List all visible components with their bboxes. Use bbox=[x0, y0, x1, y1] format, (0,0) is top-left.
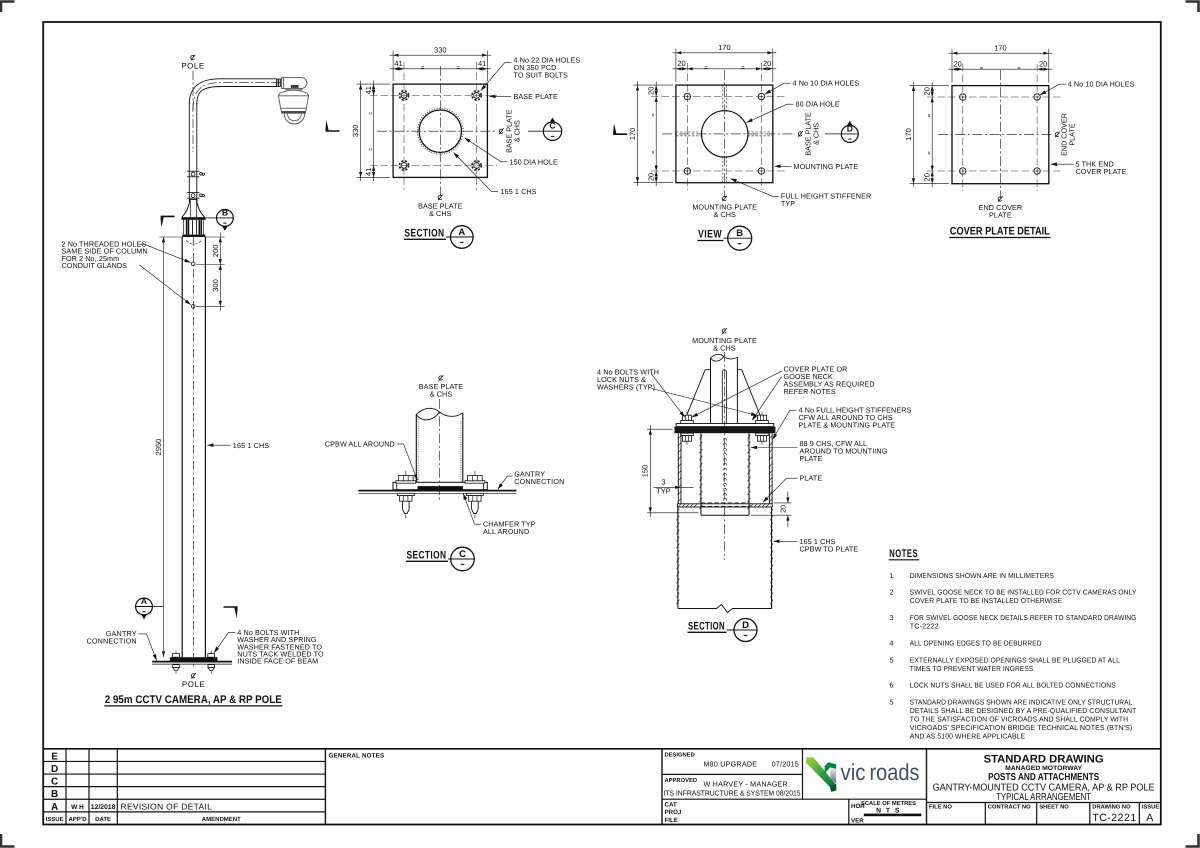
svg-text:PLATE: PLATE bbox=[1068, 123, 1077, 145]
svg-text:REVISION OF DETAIL: REVISION OF DETAIL bbox=[121, 801, 213, 811]
svg-text:CAT: CAT bbox=[665, 801, 677, 808]
svg-text:=: = bbox=[368, 147, 374, 151]
svg-text:FILE: FILE bbox=[665, 817, 678, 824]
svg-text:PLATE: PLATE bbox=[989, 211, 1012, 220]
svg-text:APP'D: APP'D bbox=[68, 816, 87, 823]
svg-text:SHEET NO: SHEET NO bbox=[1039, 804, 1069, 811]
svg-text:TC-2221: TC-2221 bbox=[1092, 812, 1136, 824]
svg-text:PLATE & MOUNTING PLATE: PLATE & MOUNTING PLATE bbox=[799, 421, 896, 430]
svg-text:=: = bbox=[980, 66, 984, 72]
svg-text:TIMES TO PREVENT WATER INGRESS: TIMES TO PREVENT WATER INGRESS bbox=[910, 665, 1034, 673]
svg-text:VICROADS' SPECIFICATION BRIDGE: VICROADS' SPECIFICATION BRIDGE TECHNICAL… bbox=[910, 724, 1133, 732]
svg-text:B: B bbox=[51, 789, 58, 800]
svg-text:EXTERNALLY EXPOSED OPENINGS SH: EXTERNALLY EXPOSED OPENINGS SHALL BE PLU… bbox=[910, 656, 1120, 664]
svg-text:5: 5 bbox=[890, 699, 894, 707]
svg-text:CONTRACT NO: CONTRACT NO bbox=[988, 804, 1031, 811]
svg-text:3: 3 bbox=[890, 614, 894, 622]
svg-text:170: 170 bbox=[628, 128, 637, 141]
svg-text:20: 20 bbox=[763, 59, 771, 68]
svg-text:& CHS: & CHS bbox=[430, 390, 453, 399]
svg-text:150: 150 bbox=[641, 465, 650, 478]
svg-text:PROJ: PROJ bbox=[665, 809, 682, 816]
svg-text:VIEW: VIEW bbox=[698, 229, 722, 241]
svg-text:FOR SWIVEL GOOSE NECK DETAILS: FOR SWIVEL GOOSE NECK DETAILS REFER TO S… bbox=[910, 614, 1137, 622]
svg-text:ALL OPENING EDGES TO BE DEBURR: ALL OPENING EDGES TO BE DEBURRED bbox=[910, 639, 1042, 647]
svg-text:DATE: DATE bbox=[95, 816, 111, 823]
svg-text:2950: 2950 bbox=[154, 439, 163, 456]
svg-text:170: 170 bbox=[994, 43, 1007, 52]
svg-text:4: 4 bbox=[890, 639, 894, 647]
svg-text:& CHS: & CHS bbox=[812, 123, 821, 145]
svg-text:170: 170 bbox=[904, 128, 913, 141]
svg-text:ISSUE: ISSUE bbox=[46, 816, 64, 823]
svg-text:POLE: POLE bbox=[181, 62, 204, 71]
svg-text:3: 3 bbox=[661, 478, 665, 487]
svg-text:DETAILS SHALL BE DESIGNED BY A: DETAILS SHALL BE DESIGNED BY A PRE-QUALI… bbox=[910, 707, 1137, 715]
svg-text:4 No 10 DIA HOLES: 4 No 10 DIA HOLES bbox=[793, 79, 860, 88]
svg-text:20: 20 bbox=[1039, 59, 1047, 68]
svg-text:07/2015: 07/2015 bbox=[772, 760, 799, 769]
svg-text:FILE NO: FILE NO bbox=[929, 804, 952, 811]
svg-text:MANAGED MOTORWAY: MANAGED MOTORWAY bbox=[1005, 765, 1083, 772]
svg-text:APPROVED: APPROVED bbox=[665, 777, 698, 784]
svg-text:AND AS 5100 WHERE APPLICABLE: AND AS 5100 WHERE APPLICABLE bbox=[910, 733, 1026, 741]
svg-text:C: C bbox=[459, 549, 466, 560]
svg-text:M80 UPGRADE: M80 UPGRADE bbox=[704, 760, 758, 769]
svg-text:REFER NOTES: REFER NOTES bbox=[784, 387, 836, 396]
svg-text:POSTS AND ATTACHMENTS: POSTS AND ATTACHMENTS bbox=[988, 772, 1099, 783]
svg-text:2 95m CCTV CAMERA, AP & RP POL: 2 95m CCTV CAMERA, AP & RP POLE bbox=[105, 694, 282, 706]
svg-text:D: D bbox=[742, 620, 749, 631]
svg-text:330: 330 bbox=[434, 45, 447, 54]
svg-text:=: = bbox=[741, 66, 745, 72]
svg-text:& CHS: & CHS bbox=[513, 120, 522, 142]
svg-text:=: = bbox=[704, 66, 708, 72]
svg-text:E: E bbox=[51, 751, 58, 762]
svg-text:41: 41 bbox=[364, 86, 373, 94]
svg-text:SECTION: SECTION bbox=[407, 550, 447, 562]
svg-text:W HARVEY - MANAGER: W HARVEY - MANAGER bbox=[704, 780, 788, 789]
svg-text:41: 41 bbox=[478, 59, 486, 68]
svg-text:5: 5 bbox=[890, 656, 894, 664]
svg-text:200: 200 bbox=[211, 245, 220, 258]
svg-text:INSIDE FACE OF BEAM: INSIDE FACE OF BEAM bbox=[237, 657, 318, 666]
svg-text:N T S: N T S bbox=[876, 807, 901, 814]
svg-text:TYP: TYP bbox=[781, 199, 795, 208]
svg-text:=: = bbox=[421, 66, 425, 72]
svg-text:TYPICAL ARRANGEMENT: TYPICAL ARRANGEMENT bbox=[996, 792, 1091, 803]
svg-text:vic: vic bbox=[841, 759, 866, 785]
svg-text:CONDUIT GLANDS: CONDUIT GLANDS bbox=[62, 261, 128, 270]
svg-text:80 DIA HOLE: 80 DIA HOLE bbox=[796, 100, 840, 109]
svg-text:WASHERS (TYP): WASHERS (TYP) bbox=[597, 383, 655, 392]
svg-text:=: = bbox=[651, 150, 657, 154]
svg-text:CONNECTION: CONNECTION bbox=[514, 477, 564, 486]
svg-text:C: C bbox=[51, 777, 58, 788]
svg-text:TO SUIT BOLTS: TO SUIT BOLTS bbox=[514, 71, 569, 80]
svg-text:ITS INFRASTRUCTURE & SYSTEM 08: ITS INFRASTRUCTURE & SYSTEM 08/2015 bbox=[664, 788, 801, 797]
svg-text:170: 170 bbox=[718, 43, 731, 52]
svg-text:& CHS: & CHS bbox=[713, 344, 736, 353]
svg-text:20: 20 bbox=[647, 173, 656, 181]
svg-text:4 No 10 DIA HOLES: 4 No 10 DIA HOLES bbox=[1068, 80, 1135, 89]
svg-text:=: = bbox=[927, 113, 933, 117]
svg-text:2: 2 bbox=[890, 588, 894, 596]
svg-text:roads: roads bbox=[870, 759, 920, 785]
svg-text:20: 20 bbox=[954, 59, 962, 68]
svg-text:GENERAL NOTES: GENERAL NOTES bbox=[329, 753, 385, 760]
svg-text:SWIVEL GOOSE NECK TO BE INSTAL: SWIVEL GOOSE NECK TO BE INSTALLED FOR CC… bbox=[910, 588, 1137, 596]
svg-text:LOCK NUTS SHALL BE USED FOR AL: LOCK NUTS SHALL BE USED FOR ALL BOLTED C… bbox=[910, 682, 1116, 690]
svg-text:VER: VER bbox=[851, 817, 864, 824]
svg-text:B: B bbox=[222, 207, 228, 217]
svg-text:CPBW TO PLATE: CPBW TO PLATE bbox=[800, 544, 859, 553]
svg-text:& CHS: & CHS bbox=[713, 210, 736, 219]
svg-text:150 DIA HOLE: 150 DIA HOLE bbox=[510, 157, 558, 166]
svg-text:SECTION: SECTION bbox=[688, 621, 725, 633]
svg-text:DIMENSIONS SHOWN ARE IN MILLIM: DIMENSIONS SHOWN ARE IN MILLIMETERS bbox=[910, 572, 1054, 580]
svg-text:POLE: POLE bbox=[182, 680, 205, 689]
svg-text:A: A bbox=[1146, 812, 1154, 824]
svg-text:=: = bbox=[1017, 66, 1021, 72]
svg-text:STANDARD DRAWINGS SHOWN ARE IN: STANDARD DRAWINGS SHOWN ARE INDICATIVE O… bbox=[910, 699, 1133, 707]
svg-text:=: = bbox=[927, 151, 933, 155]
svg-text:=: = bbox=[651, 113, 657, 117]
svg-text:B: B bbox=[736, 228, 743, 239]
svg-text:CPBW ALL AROUND: CPBW ALL AROUND bbox=[325, 439, 395, 448]
svg-text:TC-2222: TC-2222 bbox=[910, 622, 939, 630]
svg-text:330: 330 bbox=[351, 125, 360, 138]
svg-text:ISSUE: ISSUE bbox=[1142, 804, 1160, 811]
svg-text:TO THE SATISFACTION OF VICROAD: TO THE SATISFACTION OF VICROADS AND SHAL… bbox=[910, 716, 1128, 724]
svg-text:165 1 CHS: 165 1 CHS bbox=[501, 187, 537, 196]
svg-text:PLATE: PLATE bbox=[800, 454, 823, 463]
svg-text:MOUNTING PLATE: MOUNTING PLATE bbox=[794, 162, 859, 171]
svg-text:STANDARD DRAWING: STANDARD DRAWING bbox=[984, 753, 1104, 765]
svg-text:SCALE OF METRES: SCALE OF METRES bbox=[861, 800, 916, 807]
svg-text:D: D bbox=[51, 764, 58, 775]
svg-text:COVER PLATE: COVER PLATE bbox=[1076, 167, 1127, 176]
svg-text:DRAWING NO: DRAWING NO bbox=[1092, 804, 1131, 811]
svg-text:300: 300 bbox=[211, 279, 220, 292]
svg-text:20: 20 bbox=[677, 59, 685, 68]
svg-text:12/2018: 12/2018 bbox=[91, 804, 116, 811]
svg-text:SECTION: SECTION bbox=[405, 228, 445, 240]
svg-text:6: 6 bbox=[890, 682, 894, 690]
svg-text:W H: W H bbox=[71, 804, 84, 811]
svg-text:COVER PLATE DETAIL: COVER PLATE DETAIL bbox=[950, 226, 1050, 238]
svg-text:& CHS: & CHS bbox=[429, 209, 452, 218]
svg-text:DESIGNED: DESIGNED bbox=[665, 751, 695, 758]
svg-text:COVER PLATE TO BE INSTALLED OT: COVER PLATE TO BE INSTALLED OTHERWISE bbox=[910, 597, 1063, 605]
svg-text:41: 41 bbox=[364, 168, 373, 176]
svg-text:A: A bbox=[51, 802, 58, 813]
svg-text:20: 20 bbox=[647, 87, 656, 95]
svg-text:A: A bbox=[458, 227, 465, 238]
svg-text:ALL AROUND: ALL AROUND bbox=[483, 527, 529, 536]
svg-text:A: A bbox=[141, 596, 147, 606]
svg-text:AMENDMENT: AMENDMENT bbox=[202, 816, 241, 823]
svg-text:CONNECTION: CONNECTION bbox=[86, 637, 136, 646]
svg-text:1: 1 bbox=[890, 572, 894, 580]
svg-text:20: 20 bbox=[923, 173, 932, 181]
svg-text:PLATE: PLATE bbox=[800, 474, 823, 483]
svg-text:TYP: TYP bbox=[656, 486, 671, 495]
svg-text:20: 20 bbox=[923, 87, 932, 95]
svg-text:41: 41 bbox=[394, 59, 402, 68]
svg-text:165 1 CHS: 165 1 CHS bbox=[233, 441, 270, 450]
svg-text:20: 20 bbox=[780, 505, 787, 513]
svg-text:=: = bbox=[368, 111, 374, 115]
svg-text:BASE PLATE: BASE PLATE bbox=[514, 92, 559, 101]
svg-text:NOTES: NOTES bbox=[889, 548, 918, 560]
svg-text:=: = bbox=[456, 66, 460, 72]
